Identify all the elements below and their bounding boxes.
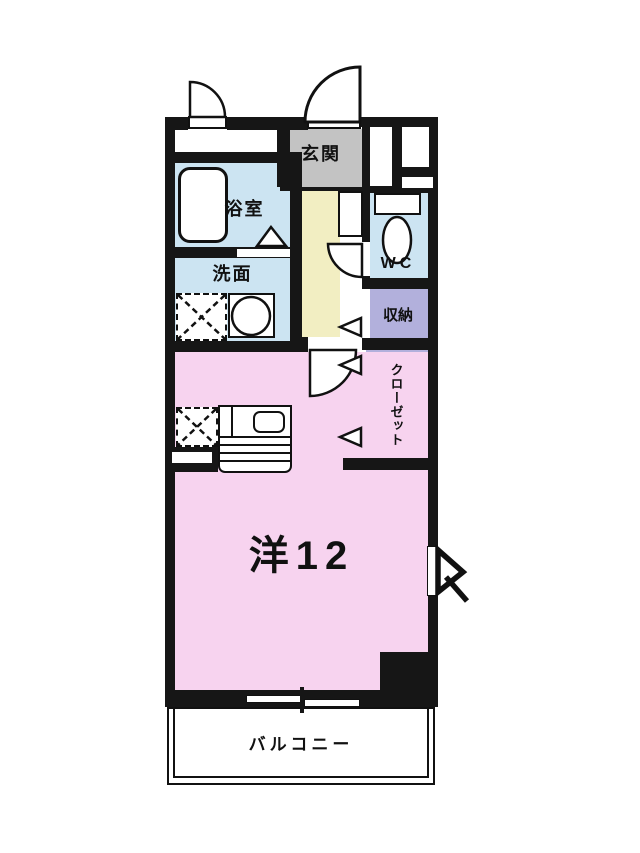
wall-under-closet (343, 458, 438, 470)
casement-window-slot (427, 546, 438, 596)
wc-label: WC (368, 255, 428, 273)
closet-label: クローゼット (383, 353, 409, 457)
wall-right (428, 117, 438, 707)
utility-door-arc (190, 82, 225, 117)
entrance-door-arc (305, 67, 360, 122)
sliding-window-right-pane (304, 699, 360, 707)
room-utility-space (175, 127, 277, 153)
wall-bath-hall (290, 163, 302, 352)
toilet-tank (374, 193, 421, 215)
kitchen-stub-slot (172, 452, 212, 463)
storage-label: 収納 (368, 305, 428, 323)
bath-label: 浴室 (175, 197, 290, 219)
sliding-window-center-tick (300, 687, 304, 713)
refrigerator-space (176, 407, 218, 447)
casement-window-symbol (438, 550, 463, 592)
wall-top-mid (227, 117, 308, 130)
wall-wc-storage (362, 278, 438, 289)
sliding-window-left-pane (246, 695, 301, 703)
washing-machine-space (176, 293, 227, 341)
pipe-space-compartment-right (402, 127, 429, 167)
pipe-space-vent-slot (402, 177, 433, 188)
utility-door-threshold (188, 116, 227, 129)
bath-door-opening (237, 249, 290, 257)
wall-left (165, 117, 175, 707)
room-hall (302, 191, 340, 340)
balcony-label: バルコニー (167, 730, 435, 754)
genkan-label: 玄関 (280, 142, 362, 164)
pipe-space-compartment-left (370, 127, 392, 186)
kitchen-sink (253, 411, 285, 433)
casement-window-tick (446, 577, 467, 601)
pillar (380, 652, 438, 707)
wall-storage-closet (362, 338, 438, 350)
floor-plan: 玄関 浴室 洗面 WC 収納 クローゼット 洋12 バルコニー (0, 0, 640, 853)
main-room-door-opening (308, 337, 362, 352)
entrance-door-threshold (307, 116, 361, 129)
main-room-label: 洋12 (175, 527, 428, 577)
wall-under-washroom (165, 341, 302, 352)
shoe-cabinet (338, 191, 363, 237)
washroom-label: 洗面 (175, 262, 290, 284)
washbasin (228, 293, 275, 338)
